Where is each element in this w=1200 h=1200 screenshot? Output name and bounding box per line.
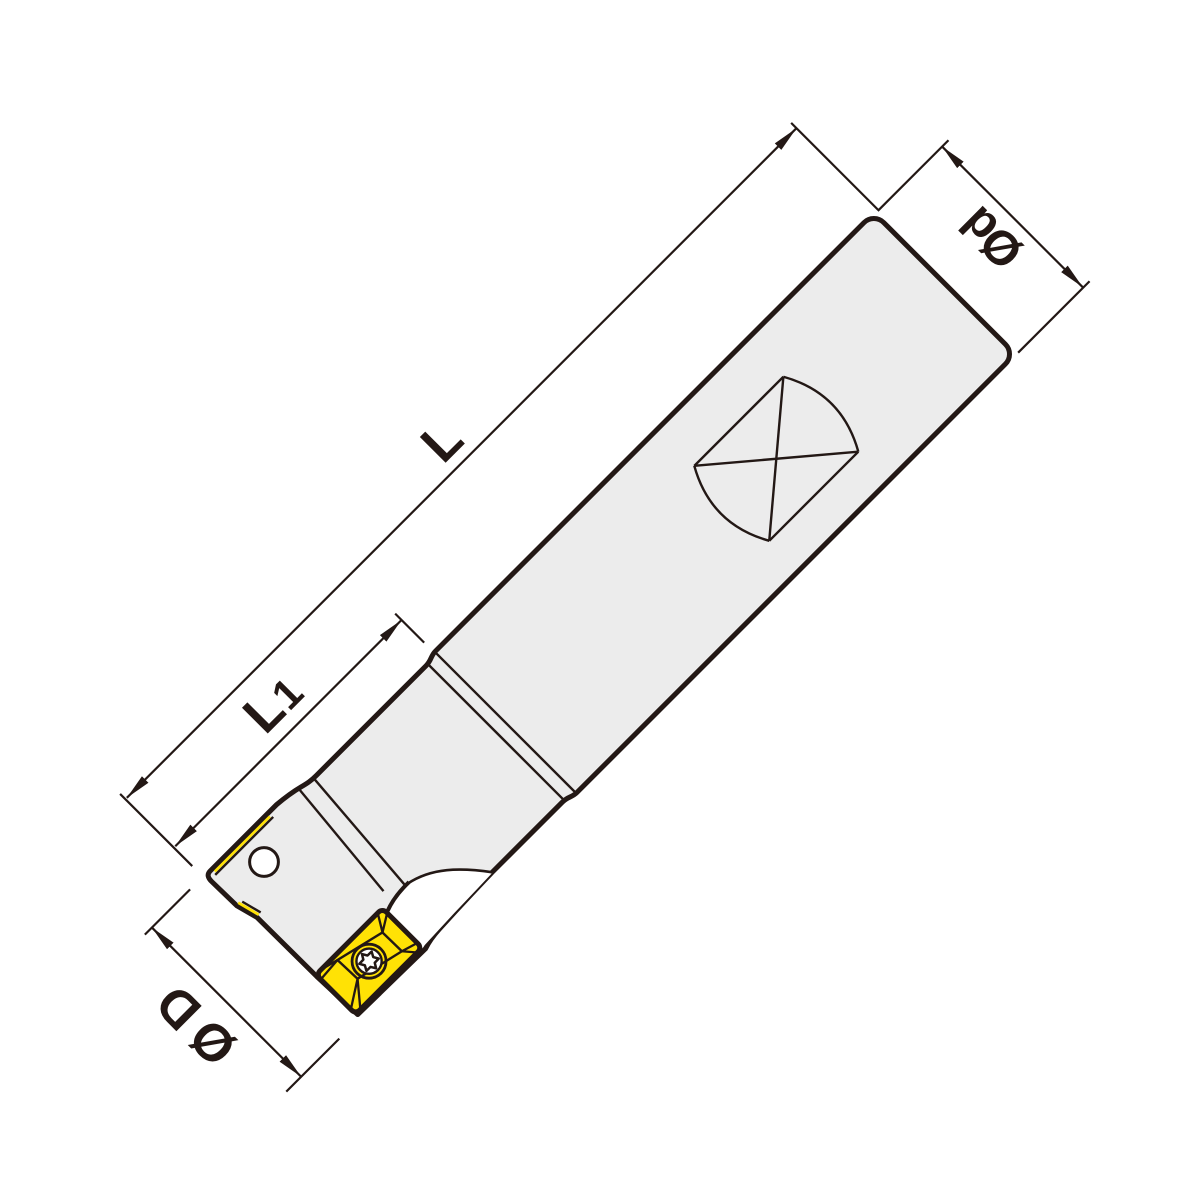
svg-text:Ød: Ød <box>952 197 1034 279</box>
svg-text:ØD: ØD <box>138 966 248 1076</box>
svg-text:L: L <box>410 409 475 474</box>
svg-text:L1: L1 <box>232 661 315 744</box>
